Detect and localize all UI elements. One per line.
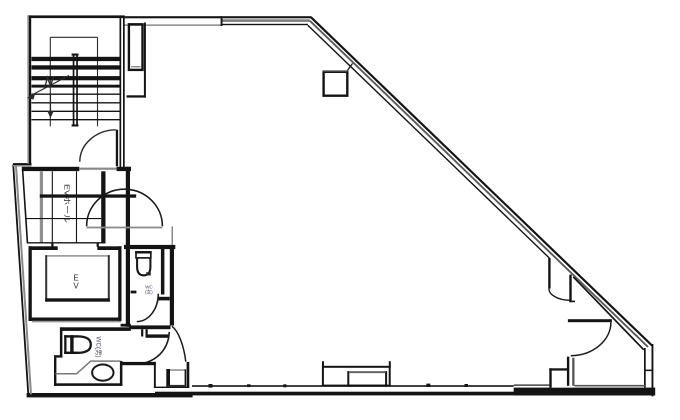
svg-text:EVホール: EVホール xyxy=(63,184,72,224)
svg-text:WC(男): WC(男) xyxy=(95,337,103,358)
svg-text:(女): (女) xyxy=(145,289,153,296)
svg-text:V: V xyxy=(73,282,79,291)
